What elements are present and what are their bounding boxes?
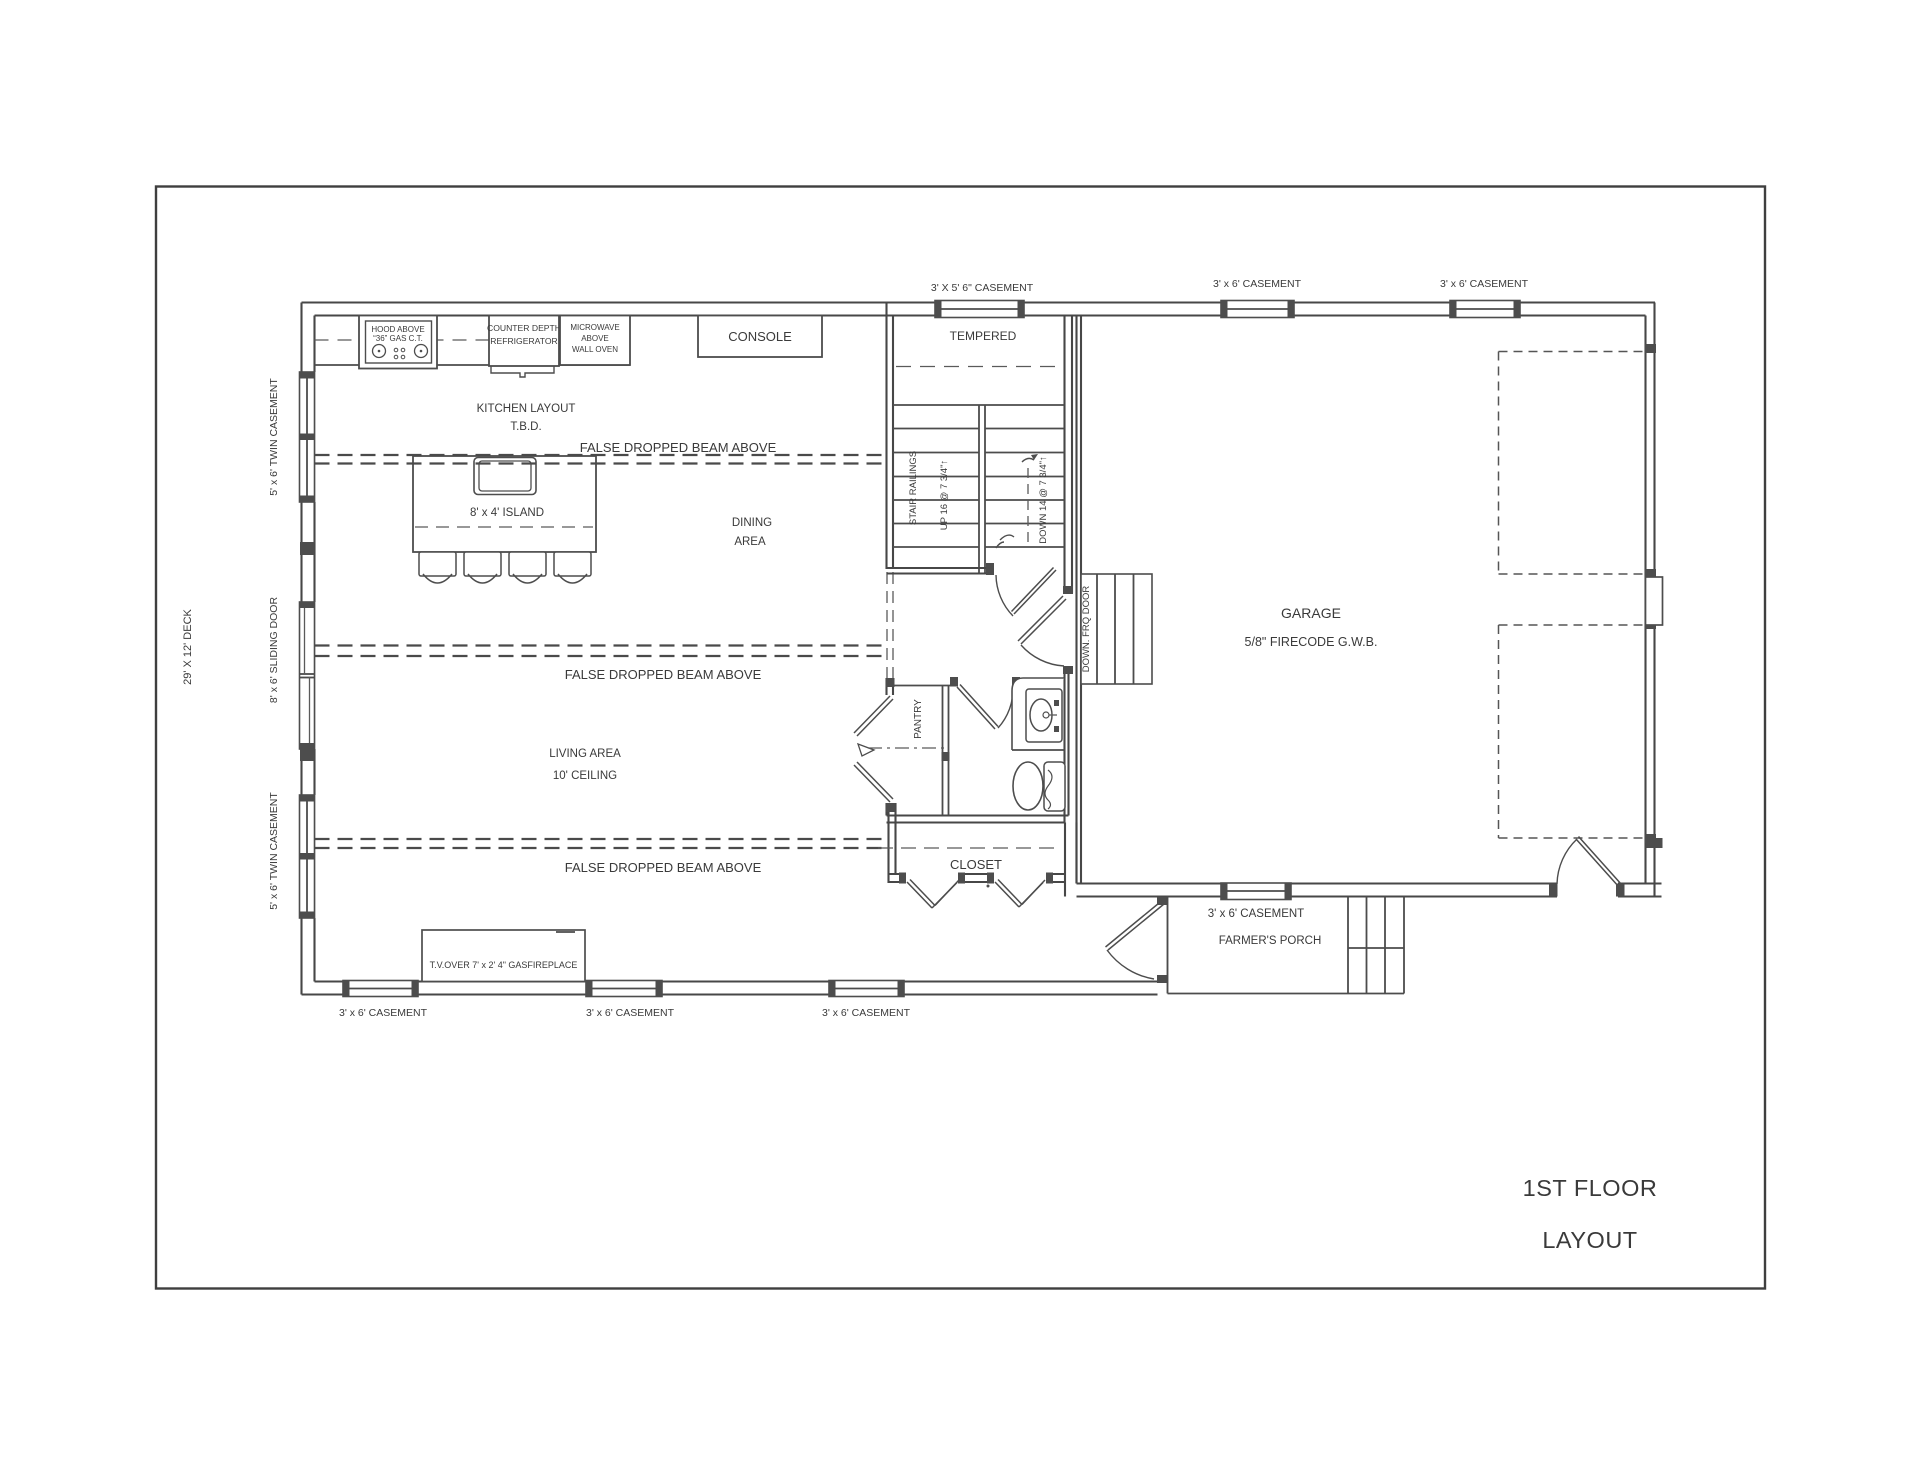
svg-text:LAYOUT: LAYOUT <box>1542 1227 1637 1253</box>
svg-text:1ST FLOOR: 1ST FLOOR <box>1523 1175 1658 1201</box>
svg-text:UP 16 @ 7 3/4"↑: UP 16 @ 7 3/4"↑ <box>939 460 950 530</box>
svg-text:3' x 6' CASEMENT: 3' x 6' CASEMENT <box>586 1007 675 1019</box>
svg-text:MICROWAVE: MICROWAVE <box>570 323 619 332</box>
svg-text:FALSE DROPPED BEAM ABOVE: FALSE DROPPED BEAM ABOVE <box>565 667 762 682</box>
svg-text:3' x 6' CASEMENT: 3' x 6' CASEMENT <box>339 1007 428 1019</box>
svg-text:TEMPERED: TEMPERED <box>950 329 1017 343</box>
svg-text:LIVING AREA: LIVING AREA <box>549 748 621 760</box>
svg-text:PANTRY: PANTRY <box>913 699 924 739</box>
svg-text:CLOSET: CLOSET <box>950 857 1002 872</box>
svg-text:DOWN. FRQ DOOR: DOWN. FRQ DOOR <box>1081 586 1092 673</box>
svg-text:5/8" FIRECODE G.W.B.: 5/8" FIRECODE G.W.B. <box>1245 635 1378 649</box>
svg-text:AREA: AREA <box>734 536 766 548</box>
svg-text:DOWN 14 @ 7 3/4"↑: DOWN 14 @ 7 3/4"↑ <box>1038 456 1049 543</box>
svg-text:T.B.D.: T.B.D. <box>510 421 541 433</box>
svg-text:REFRIGERATOR: REFRIGERATOR <box>490 336 557 346</box>
svg-text:3' x 6' CASEMENT: 3' x 6' CASEMENT <box>822 1007 911 1019</box>
svg-text:KITCHEN LAYOUT: KITCHEN LAYOUT <box>477 403 576 415</box>
svg-text:FARMER'S PORCH: FARMER'S PORCH <box>1219 935 1322 947</box>
svg-text:FALSE DROPPED BEAM ABOVE: FALSE DROPPED BEAM ABOVE <box>580 440 777 455</box>
svg-text:FALSE DROPPED BEAM ABOVE: FALSE DROPPED BEAM ABOVE <box>565 860 762 875</box>
svg-text:5' x 6' TWIN CASEMENT: 5' x 6' TWIN CASEMENT <box>268 792 280 910</box>
svg-text:3' x 6' CASEMENT: 3' x 6' CASEMENT <box>1440 278 1529 290</box>
svg-text:3' X 5' 6" CASEMENT: 3' X 5' 6" CASEMENT <box>931 282 1034 294</box>
svg-text:8' x 4' ISLAND: 8' x 4' ISLAND <box>470 507 544 519</box>
svg-text:CONSOLE: CONSOLE <box>728 329 792 344</box>
svg-text:COUNTER DEPTH: COUNTER DEPTH <box>487 323 561 333</box>
svg-text:HOOD ABOVE: HOOD ABOVE <box>371 325 424 334</box>
svg-text:STAIR RAILINGS: STAIR RAILINGS <box>908 451 919 525</box>
svg-text:3' x 6' CASEMENT: 3' x 6' CASEMENT <box>1208 908 1304 920</box>
svg-text:ABOVE: ABOVE <box>581 334 609 343</box>
svg-text:DINING: DINING <box>732 517 772 529</box>
svg-text:T.V.OVER 7' x 2' 4" GASFIREPLA: T.V.OVER 7' x 2' 4" GASFIREPLACE <box>430 960 578 970</box>
svg-text:29' X 12' DECK: 29' X 12' DECK <box>182 608 194 684</box>
svg-text:WALL OVEN: WALL OVEN <box>572 345 618 354</box>
svg-text:“36” GAS C.T.: “36” GAS C.T. <box>373 334 423 343</box>
svg-text:8' x 6' SLIDING DOOR: 8' x 6' SLIDING DOOR <box>268 597 280 704</box>
svg-text:GARAGE: GARAGE <box>1281 605 1341 621</box>
svg-text:5' x 6' TWIN CASEMENT: 5' x 6' TWIN CASEMENT <box>268 378 280 496</box>
svg-text:10' CEILING: 10' CEILING <box>553 770 617 782</box>
svg-text:3' x 6' CASEMENT: 3' x 6' CASEMENT <box>1213 278 1302 290</box>
